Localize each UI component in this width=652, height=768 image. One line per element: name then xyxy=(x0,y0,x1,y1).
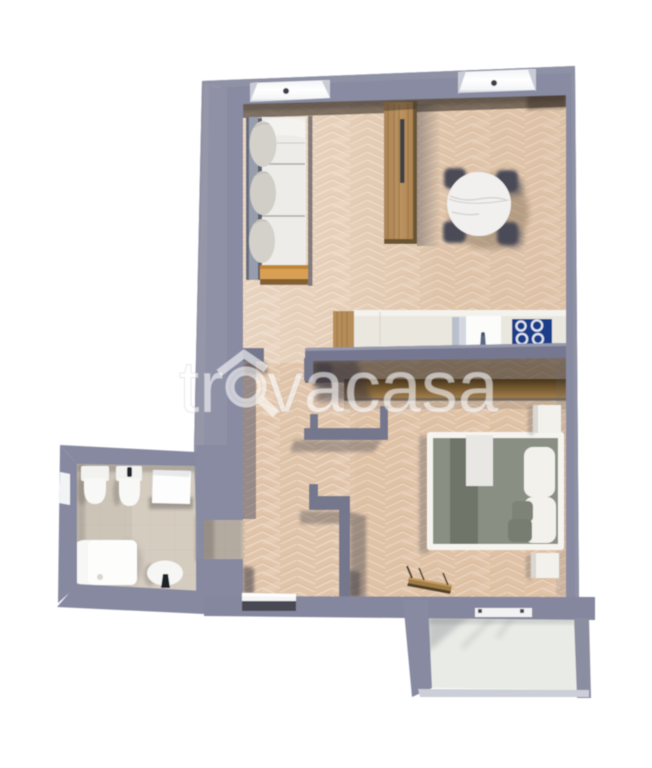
svg-text:vacasa: vacasa xyxy=(267,347,499,428)
svg-text:tr: tr xyxy=(179,347,224,428)
